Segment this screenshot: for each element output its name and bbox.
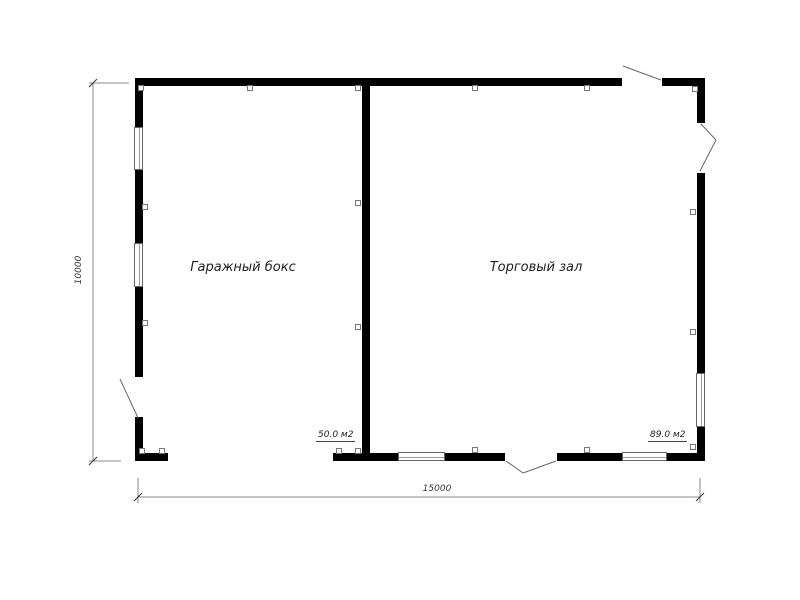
column-marker [142,320,148,326]
window-glazing-line [139,128,140,169]
room-name-garage: Гаражный бокс [143,260,343,275]
column-marker [584,85,590,91]
column-marker [355,448,361,454]
wall-left-seg3 [135,287,143,377]
column-marker [139,448,145,454]
room-area-garage: 50.0 м2 [316,430,355,442]
floor-plan-canvas: Гаражный бокс Торговый зал 50.0 м2 89.0 … [0,0,800,600]
window-symbol [696,373,705,427]
room-area-trading-hall: 89.0 м2 [648,430,687,442]
dimension-tick [89,79,97,87]
window-glazing-line [139,244,140,286]
door-swing-line [701,124,716,140]
wall-top-left-span [135,78,622,86]
wall-right-seg1 [697,78,705,123]
dimension-label-width: 15000 [387,484,487,494]
column-marker [247,85,253,91]
annotation-lines-layer [0,0,800,600]
column-marker [336,448,342,454]
dimension-label-height: 10000 [74,240,84,300]
column-marker [584,447,590,453]
window-symbol [134,127,143,170]
door-swing-line [506,461,523,473]
column-marker [472,447,478,453]
column-marker [690,444,696,450]
window-symbol [622,452,667,461]
column-marker [159,448,165,454]
wall-bottom-seg2 [333,453,371,461]
door-swing-line [120,379,138,418]
wall-bottom-seg6 [667,453,705,461]
column-marker [690,209,696,215]
window-symbol [398,452,445,461]
column-marker [138,85,144,91]
window-symbol [134,243,143,287]
dimension-tick [134,493,142,501]
wall-bottom-seg4 [445,453,505,461]
window-glazing-line [701,374,702,426]
column-marker [355,200,361,206]
door-swing-line [623,66,661,80]
door-swing-line [523,461,556,473]
column-marker [142,204,148,210]
column-marker [355,324,361,330]
wall-partition [362,78,370,461]
wall-bottom-seg1 [135,453,168,461]
column-marker [692,86,698,92]
wall-right-seg2 [697,173,705,373]
dimension-tick [89,457,97,465]
wall-bottom-seg3 [371,453,398,461]
window-glazing-line [623,457,666,458]
column-marker [690,329,696,335]
wall-bottom-seg5 [557,453,622,461]
dimension-tick [696,493,704,501]
column-marker [355,85,361,91]
window-glazing-line [399,457,444,458]
room-name-trading-hall: Торговый зал [436,260,636,275]
door-swing-line [700,140,716,171]
column-marker [472,85,478,91]
